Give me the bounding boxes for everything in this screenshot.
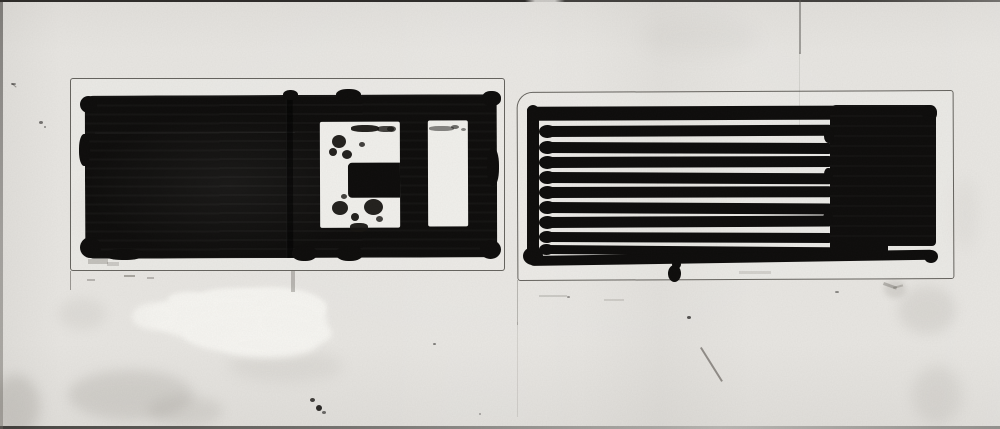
left-ink-rectangle: [85, 94, 498, 258]
stripe-end-dot: [539, 171, 556, 184]
paper-stain: [200, 288, 265, 304]
ink-stripe: [542, 172, 834, 184]
stripe-end-dot: [539, 125, 556, 138]
ink-stripe: [542, 202, 834, 215]
scanned-artwork: [0, 0, 1000, 429]
ink-speck: [341, 194, 347, 199]
right-vertical-bar: [527, 105, 539, 263]
ink-stripe: [542, 142, 834, 154]
ink-blob: [104, 249, 144, 260]
paper-stain: [912, 366, 962, 424]
ink-speck: [350, 223, 368, 232]
ink-stripe: [542, 186, 834, 198]
ink-speck: [332, 135, 346, 148]
ink-speck: [567, 296, 570, 298]
ink-blob: [80, 96, 97, 113]
scan-edge-left: [0, 0, 3, 429]
pencil-mark: [87, 279, 95, 281]
ink-blob: [922, 105, 937, 121]
pencil-mark: [517, 280, 518, 325]
ink-blob: [292, 246, 317, 261]
paper-crease: [799, 0, 801, 54]
ink-speck: [44, 126, 46, 128]
ink-speck: [687, 316, 691, 319]
pencil-mark: [147, 277, 154, 279]
ink-speck: [39, 121, 43, 124]
ink-stripe: [542, 156, 834, 168]
ink-speck: [433, 343, 436, 345]
ink-blob: [482, 91, 501, 106]
pencil-mark: [604, 299, 624, 301]
pencil-mark: [291, 271, 295, 292]
paper-stain: [132, 303, 177, 330]
ink-blob: [80, 237, 101, 258]
paper-stain: [898, 286, 956, 334]
pencil-mark: [70, 271, 71, 290]
ink-blob: [487, 148, 499, 186]
paper-stain: [58, 298, 106, 330]
ink-speck: [351, 125, 379, 132]
bar-cutout: [428, 120, 468, 226]
ink-speck: [11, 83, 16, 85]
right-black-block: [830, 105, 936, 246]
paper-stain: [222, 330, 317, 358]
ink-blob: [823, 212, 833, 225]
ink-speck: [342, 150, 352, 159]
ink-blob: [824, 168, 833, 181]
pencil-mark: [739, 271, 771, 274]
stripe-end-dot: [539, 141, 556, 154]
ink-speck: [387, 126, 396, 132]
stripe-end-dot: [539, 186, 556, 199]
ink-speck: [332, 201, 348, 215]
ink-blob: [830, 240, 888, 257]
paper-stain: [640, 18, 760, 58]
paper-stain: [952, 178, 978, 250]
ink-stripe: [542, 232, 834, 243]
ink-speck: [479, 413, 481, 415]
ink-speck: [461, 128, 466, 131]
pencil-mark: [124, 275, 135, 277]
ink-blob: [336, 89, 361, 101]
ink-blob: [824, 128, 834, 143]
ink-speck: [376, 216, 383, 222]
ink-speck: [316, 405, 322, 411]
bracket-notch: [348, 163, 400, 198]
stripe-end-dot: [539, 231, 555, 243]
ink-speck: [835, 291, 839, 293]
stripe-end-dot: [539, 216, 556, 229]
ink-blob: [924, 250, 938, 263]
paper-stain: [168, 292, 208, 306]
paper-stain: [148, 396, 223, 426]
stripe-end-dot: [539, 156, 556, 169]
ink-speck: [364, 199, 383, 215]
stripe-end-dot: [539, 201, 556, 214]
pencil-mark: [107, 262, 119, 266]
ink-blob: [480, 240, 501, 259]
scan-edge-top: [0, 0, 1000, 2]
ink-blob: [336, 246, 363, 261]
ink-speck: [310, 398, 315, 402]
pencil-mark: [517, 322, 518, 417]
ink-speck: [359, 142, 365, 147]
ink-seam: [286, 95, 294, 258]
ink-speck: [351, 213, 359, 221]
ink-blob: [672, 260, 681, 269]
marker-stroke-highlight: [95, 132, 295, 134]
ink-speck: [451, 125, 459, 129]
ink-blob: [79, 134, 90, 166]
ink-speck: [329, 148, 337, 156]
ink-blob: [283, 90, 298, 100]
ink-stripe: [542, 215, 834, 228]
pencil-mark: [88, 259, 108, 264]
ink-stripe: [542, 125, 834, 137]
ink-speck: [322, 411, 326, 414]
pencil-mark: [539, 295, 567, 297]
ink-blob: [523, 247, 543, 265]
